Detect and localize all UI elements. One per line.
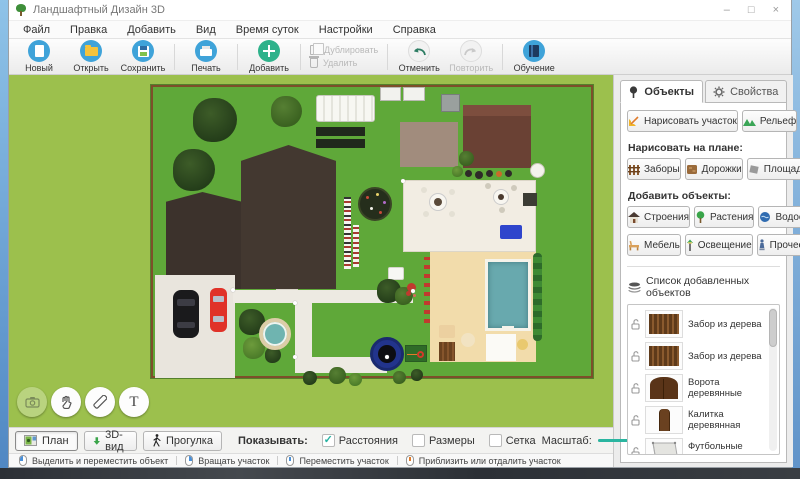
- plan-view-icon: [24, 435, 37, 446]
- plan-handle[interactable]: [385, 355, 389, 359]
- plan-pouf[interactable]: [517, 339, 528, 350]
- plan-flower-bed[interactable]: [358, 187, 392, 221]
- plan-car-red[interactable]: [210, 288, 227, 332]
- plan-patio-chair[interactable]: [423, 211, 429, 217]
- plan-handle[interactable]: [293, 301, 297, 305]
- plants-button[interactable]: Растения: [694, 206, 754, 228]
- canvas-tools: T: [17, 387, 149, 417]
- unlock-icon: [631, 447, 640, 456]
- plan-table[interactable]: [403, 87, 425, 101]
- menu-help[interactable]: Справка: [393, 24, 436, 36]
- fence-icon: [628, 164, 640, 175]
- trash-icon: [310, 58, 318, 68]
- new-file-icon: [28, 40, 50, 62]
- unlock-icon: [631, 383, 640, 394]
- plan-pot[interactable]: [475, 171, 483, 179]
- panel-divider: [627, 266, 780, 267]
- toolbar-separator: [387, 44, 388, 70]
- print-icon: [195, 40, 217, 62]
- training-button[interactable]: Обучение: [508, 40, 560, 73]
- undo-button[interactable]: Отменить: [393, 40, 445, 73]
- text-tool-glyph: T: [129, 394, 138, 411]
- unlock-icon: [631, 351, 640, 362]
- plan-garden-bed[interactable]: [316, 127, 365, 136]
- plan-handle[interactable]: [231, 288, 235, 292]
- plan-table[interactable]: [380, 87, 401, 101]
- book-icon: [523, 40, 545, 62]
- plan-canvas[interactable]: T: [9, 75, 613, 427]
- app-window: Ландшафтный Дизайн 3D – □ × Файл Правка …: [8, 0, 792, 468]
- plan-bush[interactable]: [393, 371, 406, 384]
- layers-icon: [628, 282, 641, 293]
- right-panel: Объекты Свойства Нарисовать участок: [613, 75, 793, 467]
- plan-tree[interactable]: [193, 98, 237, 142]
- walk-view-button[interactable]: Прогулка: [143, 431, 222, 451]
- thumbnail-wood-gate: [645, 374, 683, 402]
- checkbox-grid-box: [489, 434, 502, 447]
- added-objects-list[interactable]: Забор из дерева Забор из дерева Ворота д…: [627, 304, 780, 455]
- list-scrollbar[interactable]: [769, 308, 777, 451]
- water-button[interactable]: Водоемы: [758, 206, 800, 228]
- plan-fountain[interactable]: [259, 318, 291, 350]
- plan-patio-chair[interactable]: [485, 183, 491, 189]
- undo-arrow-icon: [408, 40, 430, 62]
- plan-pot[interactable]: [465, 170, 472, 177]
- relief-button[interactable]: Рельеф: [742, 110, 797, 132]
- list-item[interactable]: Забор из дерева: [631, 340, 765, 372]
- plan-shed[interactable]: [441, 94, 460, 112]
- plan-garden-bed[interactable]: [316, 139, 365, 148]
- duplicate-button: Дублировать: [310, 45, 378, 55]
- plan-pergola[interactable]: [388, 267, 404, 280]
- menu-daytime[interactable]: Время суток: [236, 24, 299, 36]
- plan-bush[interactable]: [329, 367, 346, 384]
- plan-beach-chair[interactable]: [439, 325, 455, 338]
- add-button[interactable]: Добавить: [243, 40, 295, 73]
- checkbox-sizes[interactable]: Размеры: [412, 434, 475, 447]
- plan-blanket[interactable]: [486, 334, 516, 361]
- area-icon: [748, 164, 760, 175]
- plan-path[interactable]: [295, 303, 312, 365]
- plan-hedge[interactable]: [533, 253, 542, 341]
- camera-icon: [25, 396, 40, 408]
- menu-view[interactable]: Вид: [196, 24, 216, 36]
- toolbar-separator: [237, 44, 238, 70]
- menu-add[interactable]: Добавить: [127, 24, 176, 36]
- draw-on-plan-label: Нарисовать на плане:: [628, 142, 780, 154]
- tab-objects[interactable]: Объекты: [620, 80, 703, 103]
- plan-pot[interactable]: [505, 170, 512, 177]
- close-button[interactable]: ×: [773, 0, 779, 20]
- view-3d-button[interactable]: 3D-вид: [84, 431, 137, 451]
- unlock-icon: [631, 319, 640, 330]
- hand-icon: [60, 395, 73, 409]
- plan-house-main[interactable]: [241, 145, 336, 289]
- garden-plot[interactable]: [151, 85, 593, 378]
- furniture-button[interactable]: Мебель: [627, 234, 681, 256]
- plan-pouf[interactable]: [461, 333, 475, 347]
- plan-square-table[interactable]: [523, 193, 537, 206]
- plan-patio-chair[interactable]: [449, 189, 455, 195]
- gear-icon: [713, 86, 725, 98]
- add-objects-label: Добавить объекты:: [628, 190, 780, 202]
- plan-trampoline[interactable]: [370, 337, 404, 371]
- save-floppy-icon: [132, 40, 154, 62]
- lamp-icon: [686, 239, 694, 251]
- areas-button[interactable]: Площадки: [747, 158, 800, 180]
- duplicate-icon: [310, 45, 319, 55]
- plan-sport-court[interactable]: [405, 345, 427, 362]
- plan-tree[interactable]: [271, 96, 302, 127]
- checkbox-distances-box: ✓: [322, 434, 335, 447]
- plan-bush[interactable]: [452, 166, 463, 177]
- plan-handle[interactable]: [293, 355, 297, 359]
- plan-handle[interactable]: [411, 289, 415, 293]
- plan-pot[interactable]: [486, 170, 493, 177]
- mouse-middle-icon: [286, 455, 294, 466]
- checkbox-sizes-box: [412, 434, 425, 447]
- delete-button: Удалить: [310, 58, 378, 68]
- plan-bush[interactable]: [303, 371, 317, 385]
- plan-tree[interactable]: [173, 149, 215, 191]
- plan-round-table[interactable]: [530, 163, 545, 178]
- toolbar: Новый Открыть Сохранить Печать Добавить: [9, 38, 791, 75]
- hint-rotate: Вращать участок: [185, 455, 269, 466]
- plan-bush[interactable]: [349, 373, 362, 386]
- plan-patio-chair[interactable]: [499, 207, 505, 213]
- ruler-tool-button[interactable]: [85, 387, 115, 417]
- plan-patio-table[interactable]: [429, 193, 447, 211]
- app-tree-icon: [15, 4, 27, 16]
- list-item[interactable]: Футбольные ворота: [631, 436, 765, 455]
- new-button[interactable]: Новый: [13, 40, 65, 73]
- path-icon: [686, 164, 698, 175]
- plan-patio-chair[interactable]: [421, 187, 427, 193]
- plan-car-black[interactable]: [173, 290, 199, 338]
- plan-greenhouse[interactable]: [316, 95, 375, 122]
- plan-grill[interactable]: [496, 171, 502, 177]
- hint-select-move: Выделить и переместить объект: [19, 455, 168, 466]
- plan-pool[interactable]: [485, 259, 531, 331]
- hand-tool-button[interactable]: [51, 387, 81, 417]
- menu-file[interactable]: Файл: [23, 24, 50, 36]
- view-controls-bar: План 3D-вид Прогулка Показывать: ✓ Расст…: [9, 427, 613, 453]
- mountain-icon: [743, 116, 756, 126]
- thumbnail-wicket: [645, 406, 683, 434]
- pond-icon: [759, 211, 771, 223]
- mouse-wheel-icon: [406, 455, 414, 466]
- plan-wooden-chest[interactable]: [439, 342, 455, 361]
- plan-patio-chair[interactable]: [449, 211, 455, 217]
- desktop-edge-left: [0, 0, 8, 479]
- menu-bar: Файл Правка Добавить Вид Время суток Нас…: [9, 20, 791, 38]
- plan-patio-chair[interactable]: [511, 185, 517, 191]
- add-plus-icon: [258, 40, 280, 62]
- plan-patio-table[interactable]: [493, 189, 509, 205]
- mouse-right-icon: [185, 455, 193, 466]
- tree-icon: [628, 86, 639, 98]
- title-bar: Ландшафтный Дизайн 3D – □ ×: [9, 0, 791, 20]
- walking-person-icon: [152, 434, 161, 447]
- show-label: Показывать:: [238, 435, 308, 447]
- maximize-button[interactable]: □: [748, 0, 755, 20]
- goal-graphic: [649, 441, 679, 455]
- building-icon: [628, 212, 640, 223]
- status-bar: Выделить и переместить объект Вращать уч…: [9, 453, 613, 467]
- thumbnail-football-goal: [645, 438, 683, 455]
- window-title: Ландшафтный Дизайн 3D: [33, 4, 165, 16]
- lighting-button[interactable]: Освещение: [685, 234, 753, 256]
- toolbar-separator: [174, 44, 175, 70]
- scale-label: Масштаб:: [542, 435, 592, 447]
- open-button[interactable]: Открыть: [65, 40, 117, 73]
- fences-button[interactable]: Заборы: [627, 158, 681, 180]
- toolbar-separator: [502, 44, 503, 70]
- misc-button[interactable]: Прочее: [757, 234, 800, 256]
- hint-pan: Переместить участок: [286, 455, 388, 466]
- list-scrollbar-thumb[interactable]: [769, 309, 777, 347]
- paths-button[interactable]: Дорожки: [685, 158, 743, 180]
- draw-plot-icon: [628, 115, 640, 127]
- tab-properties[interactable]: Свойства: [705, 80, 788, 103]
- statue-icon: [758, 239, 766, 251]
- hint-zoom: Приблизить или отдалить участок: [406, 455, 561, 466]
- furniture-icon: [628, 240, 640, 251]
- menu-settings[interactable]: Настройки: [319, 24, 373, 36]
- thumbnail-wood-fence: [645, 342, 683, 370]
- list-item[interactable]: Ворота деревянные: [631, 372, 765, 404]
- view-3d-arrow-icon: [93, 435, 101, 447]
- checkbox-grid[interactable]: Сетка: [489, 434, 536, 447]
- plan-bench-blue[interactable]: [500, 225, 522, 239]
- plan-flower-border[interactable]: [424, 257, 430, 323]
- plan-flower-row[interactable]: [344, 197, 351, 269]
- screen: Ландшафтный Дизайн 3D – □ × Файл Правка …: [0, 0, 800, 479]
- plan-flower-row[interactable]: [353, 225, 359, 267]
- plant-icon: [695, 211, 706, 223]
- save-button[interactable]: Сохранить: [117, 40, 169, 73]
- minimize-button[interactable]: –: [724, 0, 730, 20]
- added-objects-label: Список добавленных объектов: [628, 275, 780, 299]
- mouse-left-icon: [19, 455, 27, 466]
- list-item[interactable]: Забор из дерева: [631, 308, 765, 340]
- toolbar-separator: [300, 44, 301, 70]
- list-item[interactable]: Калитка деревянная: [631, 404, 765, 436]
- plan-bush[interactable]: [411, 369, 423, 381]
- redo-arrow-icon: [460, 40, 482, 62]
- thumbnail-wood-fence: [645, 310, 683, 338]
- open-folder-icon: [80, 40, 102, 62]
- checkbox-distances[interactable]: ✓ Расстояния: [322, 434, 398, 447]
- plan-handle[interactable]: [401, 179, 405, 183]
- draw-plot-button[interactable]: Нарисовать участок: [627, 110, 738, 132]
- unlock-icon: [631, 415, 640, 426]
- text-tool-button[interactable]: T: [119, 387, 149, 417]
- print-button[interactable]: Печать: [180, 40, 232, 73]
- ruler-icon: [93, 395, 107, 409]
- plan-view-button[interactable]: План: [15, 431, 78, 451]
- desktop-edge-bottom: [0, 468, 800, 479]
- redo-button: Повторить: [445, 40, 497, 73]
- camera-tool-button[interactable]: [17, 387, 47, 417]
- menu-edit[interactable]: Правка: [70, 24, 107, 36]
- plan-soil-patch[interactable]: [400, 122, 458, 167]
- buildings-button[interactable]: Строения: [627, 206, 690, 228]
